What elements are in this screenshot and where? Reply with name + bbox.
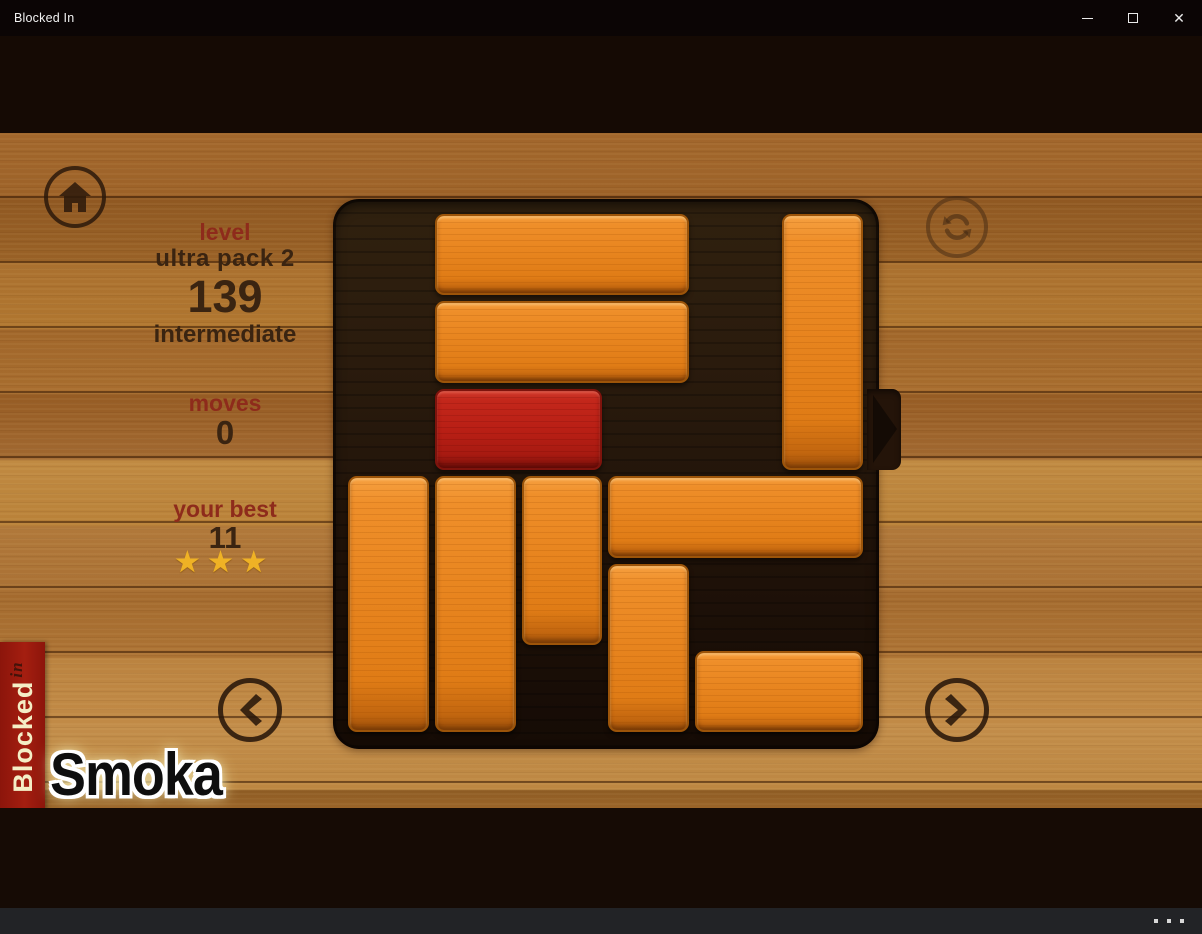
puzzle-block-h2-a[interactable] (695, 651, 863, 732)
puzzle-board (333, 199, 879, 749)
brand-ribbon-text: Blockedin (7, 661, 39, 792)
window-title: Blocked In (14, 11, 74, 25)
watermark-text: Smoka (50, 739, 222, 809)
level-label: level (115, 219, 335, 246)
more-options-icon (1167, 919, 1171, 923)
exit-arrow-icon (873, 395, 897, 463)
puzzle-block-v2-a[interactable] (522, 476, 603, 645)
close-button[interactable]: ✕ (1156, 0, 1202, 36)
next-level-button[interactable] (925, 678, 989, 742)
pack-name: ultra pack 2 (115, 245, 335, 273)
home-button[interactable] (44, 166, 106, 228)
maximize-icon (1128, 13, 1138, 23)
level-number: 139 (115, 271, 335, 323)
puzzle-block-h3-a[interactable] (435, 214, 689, 295)
home-icon (58, 181, 92, 213)
app-window: Blocked In ✕ (0, 0, 1202, 934)
player-block[interactable] (435, 389, 603, 470)
more-options-icon (1154, 919, 1158, 923)
moves-label: moves (115, 390, 335, 417)
star-rating: ★★★ (115, 547, 335, 578)
difficulty-label: intermediate (115, 321, 335, 349)
puzzle-block-v3-b[interactable] (348, 476, 429, 732)
puzzle-block-h3-b[interactable] (435, 301, 689, 382)
puzzle-block-v3-c[interactable] (435, 476, 516, 732)
window-controls: ✕ (1064, 0, 1202, 36)
titlebar: Blocked In ✕ (0, 0, 1202, 36)
best-label: your best (115, 496, 335, 523)
maximize-button[interactable] (1110, 0, 1156, 36)
top-letterbox (0, 36, 1202, 133)
brand-ribbon: Blockedin (0, 642, 45, 811)
app-statusbar (0, 908, 1202, 934)
brand-suffix: in (7, 661, 26, 677)
minimize-icon (1082, 18, 1093, 19)
bottom-letterbox (0, 808, 1202, 908)
more-options-icon (1180, 919, 1184, 923)
puzzle-block-h3-c[interactable] (608, 476, 862, 557)
exit-notch (867, 389, 901, 470)
restart-button[interactable] (926, 196, 988, 258)
moves-value: 0 (115, 414, 335, 452)
restart-icon (939, 209, 975, 245)
minimize-button[interactable] (1064, 0, 1110, 36)
more-options-button[interactable] (1154, 919, 1184, 923)
close-icon: ✕ (1173, 11, 1185, 25)
puzzle-block-v3-a[interactable] (782, 214, 863, 470)
puzzle-block-v2-b[interactable] (608, 564, 689, 733)
game-area: level ultra pack 2 139 intermediate move… (0, 133, 1202, 808)
prev-level-button[interactable] (218, 678, 282, 742)
chevron-right-icon (944, 693, 970, 727)
chevron-left-icon (237, 693, 263, 727)
